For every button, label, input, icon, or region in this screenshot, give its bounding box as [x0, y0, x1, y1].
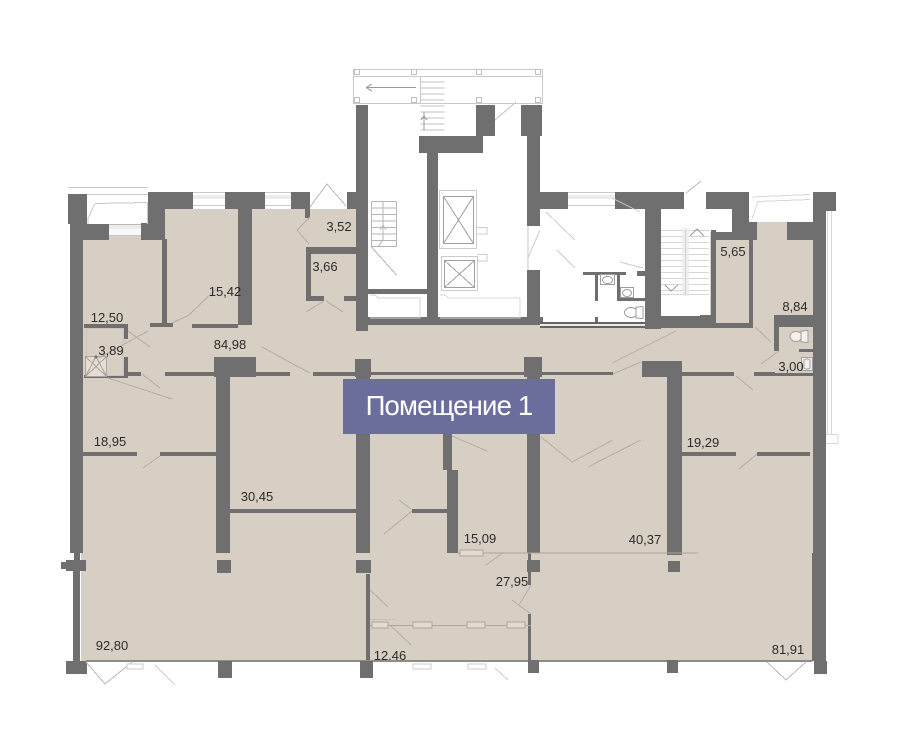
svg-text:81,91: 81,91 [772, 642, 805, 657]
svg-text:27,95: 27,95 [496, 574, 529, 589]
svg-text:30,45: 30,45 [241, 489, 274, 504]
svg-text:19,29: 19,29 [687, 435, 720, 450]
svg-text:3,00: 3,00 [778, 359, 803, 374]
svg-text:3,52: 3,52 [326, 219, 351, 234]
svg-text:18,95: 18,95 [94, 434, 127, 449]
svg-text:15,42: 15,42 [209, 284, 242, 299]
svg-text:12.46: 12.46 [374, 648, 407, 663]
svg-text:84,98: 84,98 [214, 337, 247, 352]
svg-text:40,37: 40,37 [629, 532, 662, 547]
svg-text:15,09: 15,09 [464, 531, 497, 546]
svg-text:8,84: 8,84 [782, 299, 807, 314]
svg-text:3,89: 3,89 [98, 343, 123, 358]
svg-text:5,65: 5,65 [720, 244, 745, 259]
svg-text:92,80: 92,80 [96, 638, 129, 653]
svg-text:12,50: 12,50 [91, 310, 124, 325]
svg-text:3,66: 3,66 [312, 259, 337, 274]
svg-text:Помещение 1: Помещение 1 [366, 390, 533, 421]
